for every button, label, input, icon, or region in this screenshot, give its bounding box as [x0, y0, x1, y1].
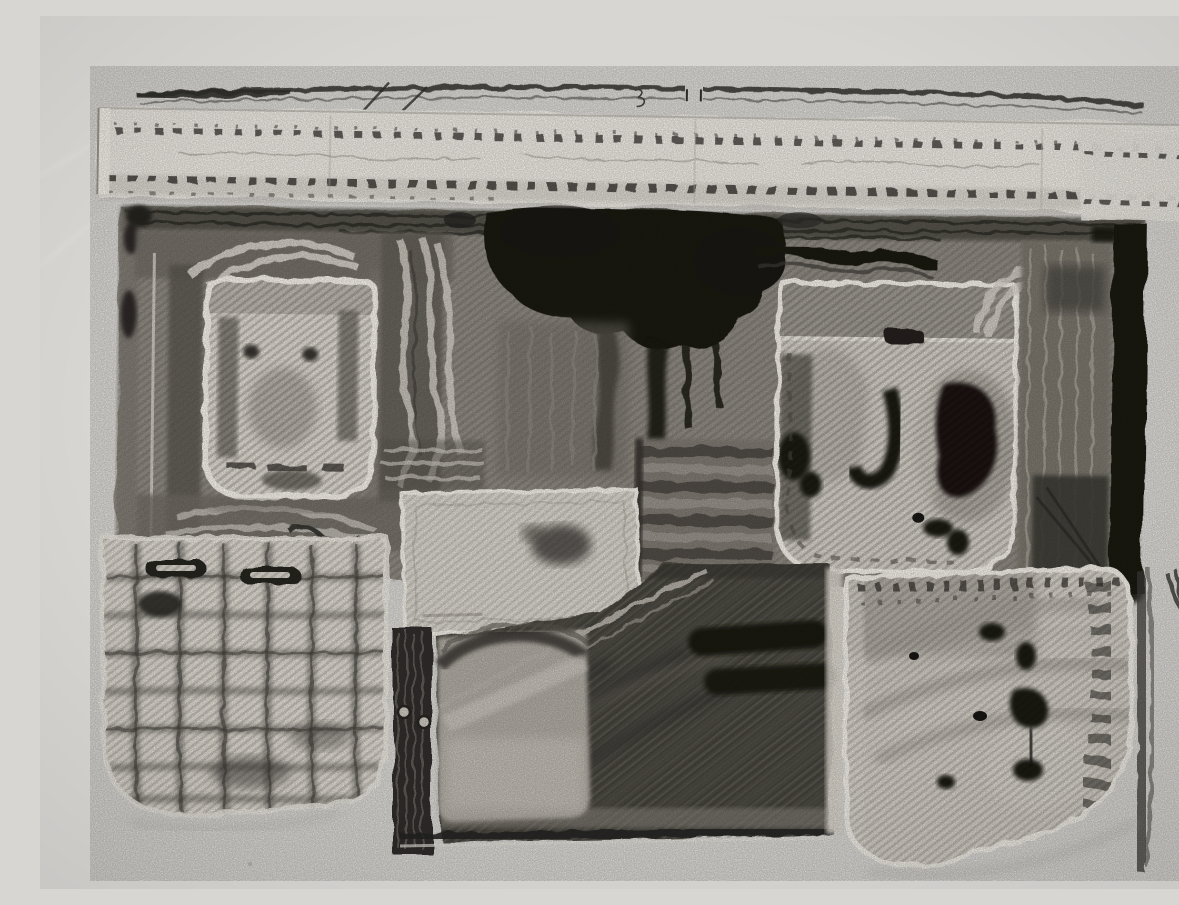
- photo-vignette: [40, 16, 1179, 889]
- artwork-canvas: Denim monoprint artwork: [40, 16, 1179, 889]
- artwork-photo: Denim monoprint artwork: [40, 16, 1179, 889]
